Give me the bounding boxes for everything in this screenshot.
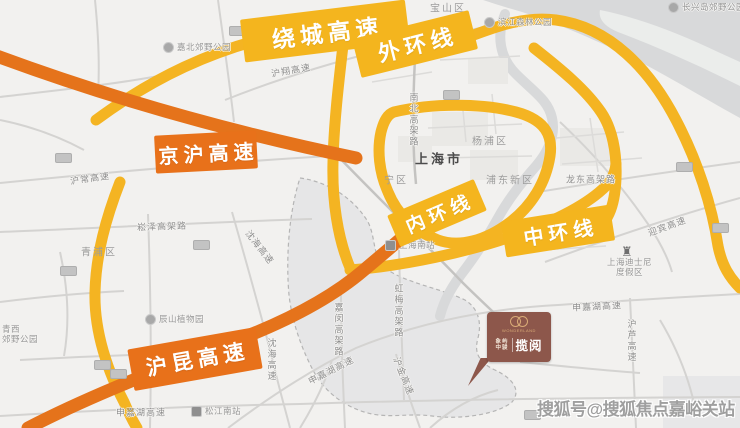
castle-icon: ♜ [621, 247, 633, 257]
road-shield [94, 360, 111, 370]
poi-chenshan-botanical-garden: 辰山植物园 [145, 313, 204, 325]
badge-jinghu-expressway: 京沪高速 [154, 130, 258, 173]
road-label-hongmei-viaduct: 虹梅高架路 [393, 284, 406, 339]
road-shield [193, 240, 210, 250]
poi-qingxi-country-park: 青西 郊野公园 [2, 324, 38, 344]
poi-changxing-island-park: 长兴岛郊野公园 [668, 1, 740, 13]
road-label-shenjiahu-east: 申嘉湖高速 [572, 298, 623, 314]
park-icon [484, 17, 495, 28]
brand-loops-icon [510, 316, 528, 327]
park-icon [163, 42, 174, 53]
project-marker-card: WONDERLAND 象屿 中骏 揽阅 [487, 312, 551, 362]
marker-tagline: WONDERLAND [502, 328, 536, 333]
road-label-longdong-viaduct: 龙东高架路 [566, 173, 616, 186]
road-label-nanbei-viaduct: 南北高架路 [408, 93, 421, 148]
poi-jiabei-park: 嘉北郊野公园 [163, 41, 231, 53]
railway-station-icon [385, 240, 396, 251]
marker-divider [512, 338, 513, 352]
road-label-songze-viaduct: 崧泽高架路 [137, 219, 187, 234]
road-label-shenjiahu-west: 申嘉湖高速 [116, 406, 166, 419]
sohu-watermark: 搜狐号@搜狐焦点嘉峪关站 [537, 395, 735, 420]
road-label-jiamin-viaduct: 嘉闵高架路 [333, 303, 346, 358]
road-shield [443, 90, 460, 100]
district-label-changning: 宁区 [384, 172, 408, 187]
road-shield [55, 153, 72, 163]
road-shield [712, 223, 729, 233]
poi-binjiang-forest-park: 滨江森林公园 [484, 16, 552, 28]
park-icon [668, 2, 679, 13]
railway-station-icon [191, 406, 202, 417]
road-shield [676, 162, 693, 172]
road-shield [60, 266, 77, 276]
district-label-yangpu: 杨浦区 [472, 133, 508, 148]
city-label-shanghai: 上海市 [415, 149, 463, 168]
project-name: 揽阅 [516, 335, 543, 354]
brand-name: 象屿 中骏 [495, 339, 508, 351]
park-icon [145, 314, 156, 325]
road-shield [110, 369, 127, 379]
road-label-shenhai-lower: 沈海高速 [266, 338, 279, 382]
district-label-pudong: 浦东新区 [486, 172, 534, 187]
district-label-qingpu: 青浦区 [81, 244, 117, 259]
station-songjiang-south: 松江南站 [191, 405, 241, 417]
road-label-hulu: 沪芦高速 [626, 319, 639, 363]
shanghai-expressway-map: 沪翔高速 沪常高速 崧泽高架路 南北高架路 沈海高速 沈海高速 嘉闵高架路 申嘉… [0, 0, 740, 428]
poi-shanghai-disney-resort: ♜ 上海迪士尼 度假区 [607, 247, 652, 277]
